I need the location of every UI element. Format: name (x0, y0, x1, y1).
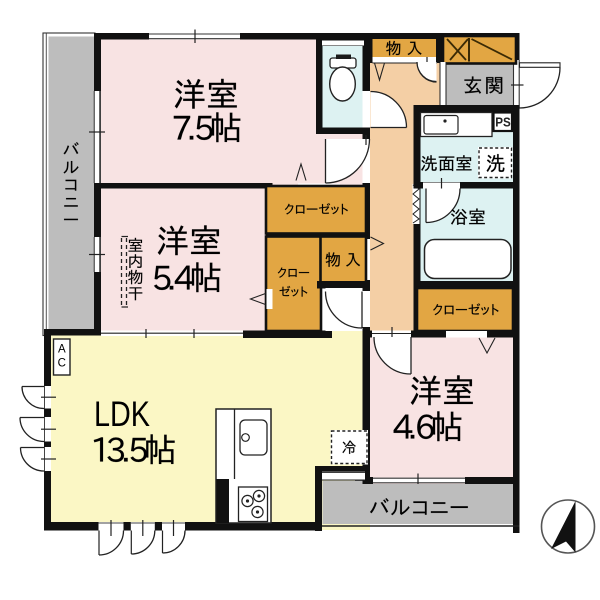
svg-text:A: A (58, 344, 66, 356)
svg-text:LDK: LDK (94, 395, 150, 434)
svg-text:C: C (58, 358, 66, 370)
svg-text:PS: PS (495, 116, 511, 130)
